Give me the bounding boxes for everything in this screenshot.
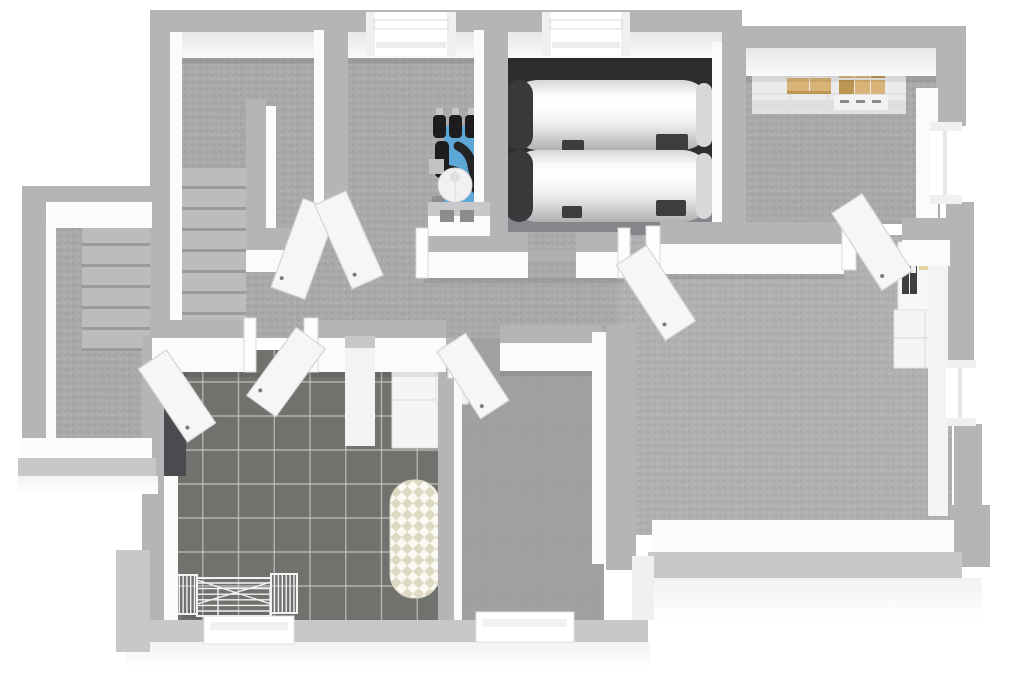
window-tank-room [542,12,630,56]
large-room-north-wall-face [660,244,844,274]
outer-wall-topright-cap [735,26,952,48]
laundry-north-wall-east-face [316,338,446,372]
outer-wall-left-upper-cap [150,10,170,335]
outer-wall-right-cap-3 [954,424,982,516]
corridor-north-wall-east-cap [576,232,622,252]
wall-shadow [164,58,742,64]
wall-shadow [424,278,624,283]
outer-wall-sw-corner [116,550,150,652]
stairwell-bottom-wall-cap [18,458,156,476]
stairwell-bottom-wall-face [20,438,152,458]
wall-vent [460,210,474,222]
hobby-large-divider-face [592,332,606,564]
vent-block-face [428,216,490,236]
tank-storage-divider-cap [722,26,746,232]
chimney-block [345,348,375,446]
stair-riser [82,285,154,288]
window-large-room-east [946,360,976,426]
hobby-north-wall-cap [500,325,602,343]
large-room-north-wall-cap [660,222,844,244]
window-rail [483,619,567,627]
stair-tread [82,225,154,246]
window-storage-room [930,122,962,204]
stair-tread [82,288,154,309]
large-room-south-wall-cap [648,552,962,578]
expansion-vessels [433,108,478,138]
window-sill [552,42,620,48]
outer-wall-bottom-outer [126,642,650,668]
floorplan-3d-rendering [0,0,1014,675]
stair-tech-divider-face [314,30,324,230]
tank-bracket [562,206,582,218]
stairwell-left-wall-cap [22,186,46,450]
stair-tread [82,309,154,330]
ironing-board [390,480,444,598]
wall-shadow [660,274,844,279]
large-room-north-wall-east-face [902,240,950,266]
bin-handle [872,100,881,103]
large-room-south-outer [648,578,982,620]
corridor-north-wall-west-face [424,252,528,278]
outer-wall-topright-face [742,48,946,76]
stairwell-bottom-outer [18,476,158,494]
tank-bracket [656,200,686,216]
wall-vent [440,210,454,222]
window-sill [376,42,446,48]
window-laundry-south [204,616,294,644]
chimney-cap [345,336,375,348]
large-room-east-wall-face [928,252,948,516]
shelf-lip [752,110,906,114]
stair-riser [82,306,154,309]
bin-handle [840,100,849,103]
door-frame [416,228,428,278]
window-rail [210,622,288,630]
large-room-south-wall-face [652,520,954,552]
tank-room-doorway-threshold [528,250,576,260]
large-room-sw-corner [632,556,654,620]
stair-riser [82,327,154,330]
control-box [429,159,444,174]
wall-shadow [500,371,602,376]
tank-end [696,153,712,219]
tech-tank-divider-face [474,30,484,230]
bin-handle [856,100,865,103]
laundry-north-wall-east-cap [316,320,446,338]
water-softener [438,168,472,202]
tank-end [696,83,712,147]
laundry-hobby-divider-face [454,354,462,622]
stair-void-wall-face [266,106,276,240]
large-room-north-wall-east-cap [902,218,952,240]
wall-shadow [742,76,942,82]
stair-tread [82,267,154,288]
window-hobby-south [476,612,574,642]
stair-riser [82,243,154,246]
hobby-north-wall-face [500,343,602,371]
board-top [390,480,440,598]
tech-tank-divider-cap [484,10,508,234]
stairwell-left-wall-face [46,224,56,448]
hobby-large-divider-cap [606,325,636,570]
corridor-north-wall-east-face [576,252,622,278]
stairwell-top-wall-face [48,202,152,228]
window-mullion [958,368,962,418]
outer-wall-left-upper-face [170,32,182,335]
window-technical-room [366,12,456,56]
outer-wall-right-cap-1 [936,26,966,126]
stair-tread [82,246,154,267]
floorplan-canvas [0,0,1014,675]
tank-storage-divider-face [712,42,722,230]
storage-tanks [505,80,712,222]
window-mullion [943,131,947,195]
laundry-north-wall-west-cap [152,320,254,338]
stairwell-top-wall-cap [44,186,152,202]
door-frame [244,318,256,372]
stair-void-wall-cap [246,100,266,242]
stair-riser [82,264,154,267]
vent-block-cap [428,202,490,216]
laundry-hobby-divider-cap [438,338,454,622]
